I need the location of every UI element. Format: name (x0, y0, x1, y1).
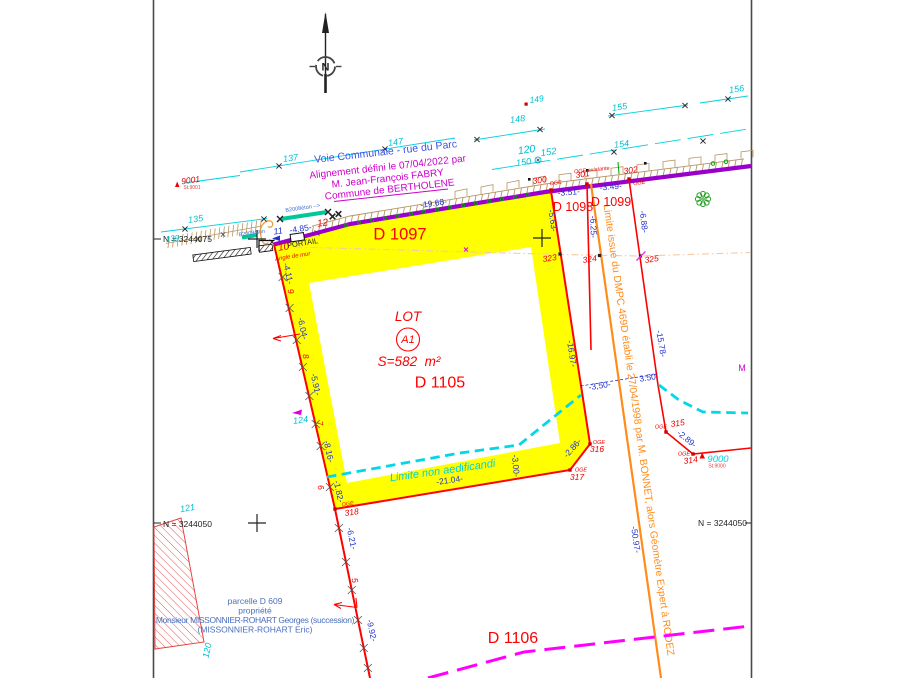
svg-text:148: 148 (509, 113, 525, 125)
svg-text:124: 124 (292, 414, 308, 426)
svg-text:-3,00-: -3,00- (510, 454, 522, 477)
svg-text:152: 152 (540, 146, 558, 159)
svg-text:D 1105: D 1105 (415, 375, 466, 392)
svg-text:S=582 m²: S=582 m² (378, 354, 441, 369)
svg-text:120: 120 (517, 143, 536, 157)
svg-text:324: 324 (582, 253, 598, 265)
svg-text:325: 325 (644, 253, 660, 265)
svg-text:150: 150 (515, 156, 531, 168)
svg-text:-3.49-: -3.49- (599, 181, 622, 193)
svg-text:-3.51-: -3.51- (557, 186, 580, 198)
svg-text:D 1106: D 1106 (488, 630, 539, 647)
svg-text:156: 156 (728, 83, 744, 95)
svg-text:LOT: LOT (395, 309, 423, 324)
svg-text:OGE: OGE (593, 440, 606, 446)
svg-text:St.9001: St.9001 (183, 185, 200, 191)
svg-text:318: 318 (344, 506, 360, 518)
svg-text:154: 154 (613, 138, 629, 150)
svg-text:302: 302 (623, 164, 639, 176)
svg-text:A1: A1 (400, 334, 414, 346)
svg-text:OGE: OGE (678, 452, 691, 458)
svg-text:323: 323 (542, 252, 558, 264)
svg-text:propriété: propriété (238, 606, 272, 616)
svg-text:N = 3244050: N = 3244050 (163, 519, 212, 529)
svg-text:D 1097: D 1097 (373, 226, 426, 244)
svg-text:149: 149 (529, 93, 545, 105)
svg-text:12: 12 (316, 217, 329, 230)
svg-text:-6.25-: -6.25- (588, 216, 599, 239)
svg-text:M: M (738, 363, 746, 373)
svg-text:N: N (322, 62, 330, 74)
svg-text:D 1098: D 1098 (553, 200, 593, 214)
svg-text:11: 11 (273, 225, 284, 236)
svg-text:300: 300 (532, 174, 548, 186)
svg-text:D 1099: D 1099 (591, 195, 631, 209)
svg-text:317: 317 (570, 472, 584, 482)
svg-text:St.9000: St.9000 (708, 464, 725, 470)
svg-text:Monsieur MISSONNIER-ROHART Geo: Monsieur MISSONNIER-ROHART Georges (succ… (156, 615, 355, 625)
svg-text:139: 139 (165, 233, 180, 244)
svg-text:OGE: OGE (575, 468, 588, 474)
svg-text:315: 315 (670, 417, 686, 429)
svg-text:(MISSONNIER-ROHART Eric): (MISSONNIER-ROHART Eric) (198, 625, 313, 635)
svg-text:parcelle D 609: parcelle D 609 (228, 596, 283, 606)
svg-text:OGE: OGE (655, 425, 668, 431)
svg-text:N = 3244050: N = 3244050 (698, 518, 747, 528)
